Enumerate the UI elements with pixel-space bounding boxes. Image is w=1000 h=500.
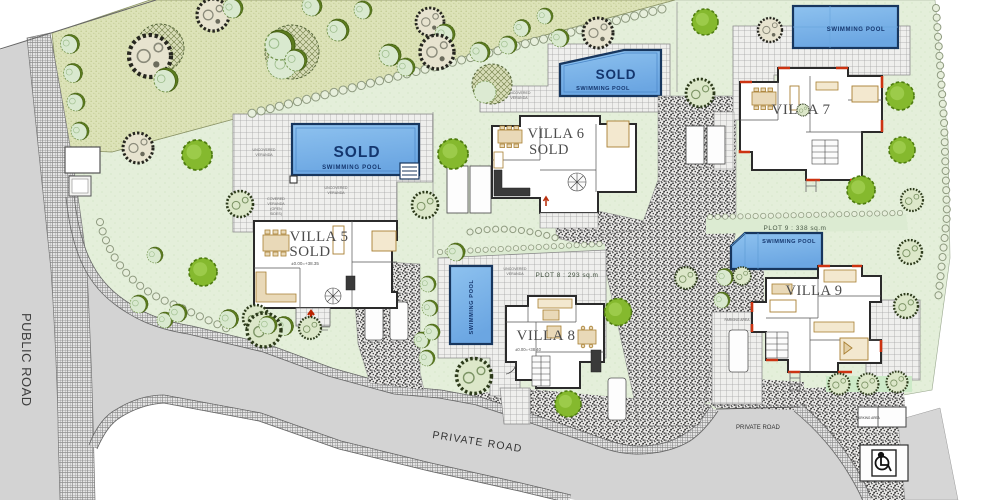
svg-text:UNCOVERED: UNCOVERED [253, 148, 276, 152]
svg-text:±0.00=+38.35: ±0.00=+38.35 [291, 261, 319, 266]
svg-text:VILLA 8: VILLA 8 [517, 328, 576, 344]
svg-text:PARKING AREA: PARKING AREA [856, 416, 880, 420]
svg-text:(OPEN: (OPEN [270, 207, 282, 211]
svg-text:SWIMMING POOL: SWIMMING POOL [576, 86, 630, 92]
svg-text:VILLA 5: VILLA 5 [290, 229, 349, 245]
svg-text:VERANDA: VERANDA [327, 191, 345, 195]
svg-text:SOLD: SOLD [289, 244, 330, 260]
svg-text:PRIVATE ROAD: PRIVATE ROAD [736, 425, 780, 431]
svg-text:PARKING AREA: PARKING AREA [725, 318, 751, 322]
svg-text:COVERED: COVERED [267, 197, 285, 201]
svg-text:VERANDA: VERANDA [267, 202, 285, 206]
svg-text:SOLD: SOLD [529, 142, 569, 158]
svg-text:SWIMMING POOL: SWIMMING POOL [762, 239, 816, 245]
svg-text:PLOT 8 : 293 sq.m: PLOT 8 : 293 sq.m [536, 272, 599, 279]
svg-text:SWIMMING POOL: SWIMMING POOL [469, 279, 475, 334]
svg-text:SOLD: SOLD [333, 144, 380, 161]
svg-text:±0.00=+38.40: ±0.00=+38.40 [515, 347, 541, 352]
svg-text:VERANDA: VERANDA [510, 96, 528, 100]
svg-text:UNCOVERED: UNCOVERED [504, 267, 527, 271]
svg-text:SIDES): SIDES) [270, 212, 282, 216]
svg-text:PLOT 9 : 338 sq.m: PLOT 9 : 338 sq.m [764, 225, 827, 232]
svg-text:SWIMMING POOL: SWIMMING POOL [322, 165, 382, 171]
svg-text:SWIMMING POOL: SWIMMING POOL [827, 27, 885, 33]
svg-text:VERANDA: VERANDA [506, 272, 524, 276]
svg-text:UNCOVERED: UNCOVERED [325, 186, 348, 190]
svg-text:VERANDA: VERANDA [255, 153, 273, 157]
svg-text:PUBLIC ROAD: PUBLIC ROAD [19, 313, 34, 407]
svg-text:UNCOVERED: UNCOVERED [508, 91, 531, 95]
svg-text:VILLA 6: VILLA 6 [527, 126, 584, 142]
svg-text:VILLA 9: VILLA 9 [785, 283, 842, 299]
svg-text:SOLD: SOLD [596, 67, 637, 82]
